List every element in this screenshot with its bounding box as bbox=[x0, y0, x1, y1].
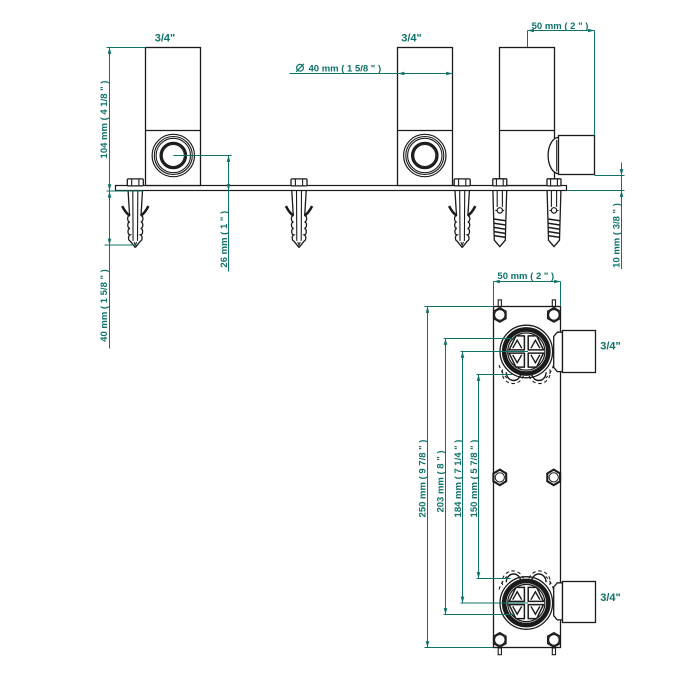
svg-text:104 mm ( 4 1/8 " ): 104 mm ( 4 1/8 " ) bbox=[99, 81, 110, 159]
svg-text:10 mm ( 3/8 " ): 10 mm ( 3/8 " ) bbox=[612, 203, 623, 268]
svg-text:3/4": 3/4" bbox=[600, 592, 621, 604]
svg-text:203 mm ( 8 " ): 203 mm ( 8 " ) bbox=[436, 450, 447, 512]
svg-text:50 mm ( 2 " ): 50 mm ( 2 " ) bbox=[532, 21, 589, 32]
svg-text:3/4": 3/4" bbox=[155, 33, 176, 45]
svg-text:150 mm ( 5 7/8 " ): 150 mm ( 5 7/8 " ) bbox=[469, 440, 480, 518]
svg-text:250 mm ( 9 7/8 " ): 250 mm ( 9 7/8 " ) bbox=[418, 440, 429, 518]
svg-text:40 mm ( 1 5/8 " ): 40 mm ( 1 5/8 " ) bbox=[309, 63, 382, 74]
svg-text:26 mm ( 1 " ): 26 mm ( 1 " ) bbox=[219, 211, 230, 268]
svg-text:3/4": 3/4" bbox=[401, 33, 422, 45]
svg-text:3/4": 3/4" bbox=[600, 341, 621, 353]
svg-text:184 mm ( 7 1/4 " ): 184 mm ( 7 1/4 " ) bbox=[453, 440, 464, 518]
svg-text:50 mm ( 2 " ): 50 mm ( 2 " ) bbox=[497, 271, 554, 282]
svg-text:40 mm ( 1 5/8 " ): 40 mm ( 1 5/8 " ) bbox=[99, 269, 110, 342]
